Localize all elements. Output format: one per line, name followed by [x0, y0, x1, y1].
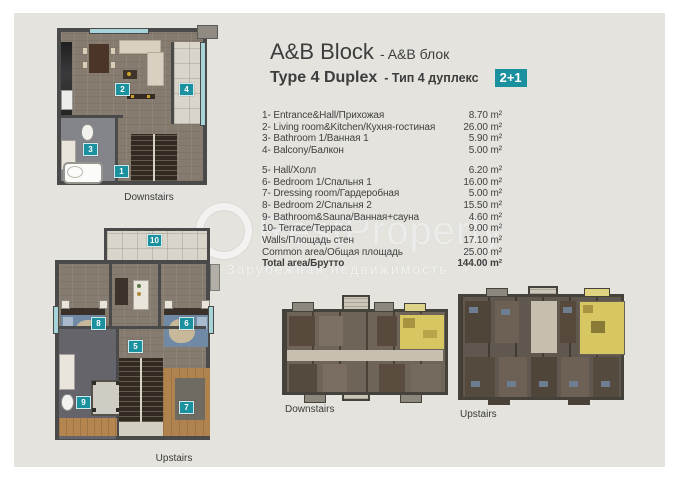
room-number-badge: 8	[91, 317, 106, 330]
unit-plan-upstairs: 10	[55, 228, 218, 440]
balcony	[304, 394, 326, 403]
bed-marker	[601, 381, 610, 387]
nightstand	[61, 300, 70, 309]
exterior-block	[197, 25, 218, 39]
chair	[83, 48, 87, 54]
unit-room	[289, 364, 317, 392]
decor	[131, 95, 134, 98]
chair	[111, 48, 115, 54]
decor	[137, 292, 141, 296]
desk	[115, 278, 128, 305]
window	[89, 28, 149, 34]
unit-plan-upstairs-label: Upstairs	[94, 453, 254, 464]
window	[208, 306, 214, 334]
building-floor	[458, 294, 624, 400]
stairs-divider	[140, 358, 142, 422]
building-plan-upstairs	[458, 286, 624, 400]
bathroom-vanity	[59, 354, 75, 390]
room-number-badge: 5	[128, 340, 143, 353]
highlighted-unit-furniture	[403, 318, 415, 328]
room-label: 1- Entrance&Hall/Прихожая	[262, 110, 384, 122]
building-plan-downstairs	[282, 295, 448, 401]
room-row: 6- Bedroom 1/Спальня 1 16.00 m²	[262, 177, 502, 189]
room-label: 7- Dressing room/Гардеробная	[262, 188, 399, 200]
room-area-value: 5.00 m²	[469, 145, 502, 157]
bathtub-basin	[67, 166, 83, 178]
stairs-divider	[153, 134, 155, 181]
bed-marker	[569, 381, 578, 387]
unit-room	[323, 364, 347, 392]
room-area-value: 9.00 m²	[469, 223, 502, 235]
room-label: Total area/Брутто	[262, 258, 344, 270]
hammam-bench	[59, 418, 117, 436]
room-label: 8- Bedroom 2/Спальня 2	[262, 200, 372, 212]
plan-sheet: RestProperty Зарубежная недвижимость® A&…	[14, 13, 665, 467]
unit-room	[289, 316, 315, 346]
room-label: 9- Bathroom&Sauna/Ванная+сауна	[262, 212, 419, 224]
room-row: 10- Terrace/Терраса 9.00 m²	[262, 223, 502, 235]
balcony	[488, 399, 510, 405]
bed-marker	[563, 307, 572, 313]
building-plan-upstairs-label: Upstairs	[460, 409, 497, 420]
room-number-badge: 3	[83, 143, 98, 156]
dressing-table	[133, 280, 149, 310]
room-row: 4- Balcony/Балкон 5.00 m²	[262, 145, 502, 157]
room-area-value: 4.60 m²	[469, 212, 502, 224]
room-area-value: 16.00 m²	[463, 177, 502, 189]
room-row: 2- Living room&Kitchen/Кухня-гостиная 26…	[262, 122, 502, 134]
room-number-badge: 1	[114, 165, 129, 178]
sauna-corner	[92, 408, 96, 412]
room-row: 3- Bathroom 1/Ванная 1 5.90 m²	[262, 133, 502, 145]
block-title: A&B Block	[270, 39, 374, 64]
highlighted-unit-furniture	[423, 330, 437, 338]
room-label: 2- Living room&Kitchen/Кухня-гостиная	[262, 122, 435, 134]
type-subtitle: - Тип 4 дуплекс	[384, 71, 478, 85]
room-area-value: 26.00 m²	[463, 122, 502, 134]
unit-room	[379, 364, 405, 392]
balcony	[486, 288, 508, 297]
room-number-badge: 4	[179, 83, 194, 96]
room-label: Walls/Площадь стен	[262, 235, 354, 247]
room-area-value: 25.00 m²	[463, 247, 502, 259]
balcony	[568, 399, 590, 405]
bed-marker	[501, 309, 510, 315]
room-label: 3- Bathroom 1/Ванная 1	[262, 133, 369, 145]
bed-marker	[507, 381, 516, 387]
room-row: Total area/Брутто 144.00 m²	[262, 258, 502, 270]
exterior-block	[210, 264, 220, 291]
bed-marker	[539, 381, 548, 387]
bed-marker	[469, 307, 478, 313]
bed-marker	[471, 381, 480, 387]
room-number-badge: 2	[115, 83, 130, 96]
room-number-badge: 7	[179, 401, 194, 414]
room-area-value: 8.70 m²	[469, 110, 502, 122]
room-label: 4- Balcony/Балкон	[262, 145, 344, 157]
room-area-value: 17.10 m²	[463, 235, 502, 247]
sauna-corner	[92, 381, 96, 385]
unit-room	[465, 357, 495, 397]
corridor	[531, 301, 557, 353]
room-row: 7- Dressing room/Гардеробная 5.00 m²	[262, 188, 502, 200]
balcony	[400, 394, 422, 403]
wall	[158, 264, 161, 326]
sofa	[147, 52, 164, 86]
room-area-value: 6.20 m²	[469, 165, 502, 177]
room-number-badge: 6	[179, 317, 194, 330]
unit-room	[377, 316, 397, 346]
corridor	[287, 350, 443, 361]
balcony	[292, 302, 314, 312]
decor	[147, 95, 150, 98]
room-row: Common area/Общая площадь 25.00 m²	[262, 247, 502, 259]
room-label: 6- Bedroom 1/Спальня 1	[262, 177, 372, 189]
chair	[83, 62, 87, 68]
room-label: 10- Terrace/Терраса	[262, 223, 352, 235]
room-area-value: 5.90 m²	[469, 133, 502, 145]
screenshot: RestProperty Зарубежная недвижимость® A&…	[0, 0, 679, 480]
unit-room	[593, 357, 619, 397]
toilet	[81, 124, 94, 141]
stair-landing	[119, 422, 163, 436]
wall	[61, 115, 123, 118]
highlighted-balcony	[584, 288, 610, 297]
bed	[61, 308, 105, 315]
nightstand	[99, 300, 108, 309]
unit-room	[499, 357, 527, 397]
room-label: Common area/Общая площадь	[262, 247, 403, 259]
room-row: 9- Bathroom&Sauna/Ванная+сауна 4.60 m²	[262, 212, 502, 224]
unit-plan-downstairs-label: Downstairs	[64, 192, 234, 203]
highlighted-balcony	[404, 303, 426, 312]
unit-room	[411, 364, 441, 392]
type-title: Type 4 Duplex	[270, 69, 377, 87]
room-label: 5- Hall/Холл	[262, 165, 316, 177]
room-area-list: 1- Entrance&Hall/Прихожая 8.70 m² 2- Liv…	[262, 110, 502, 270]
wall	[109, 264, 112, 326]
room-number-badge: 10	[147, 234, 162, 247]
chair	[111, 62, 115, 68]
balcony	[374, 302, 394, 312]
title-block: A&B Block- A&B блок Type 4 Duplex - Тип …	[270, 39, 527, 87]
block-subtitle: - A&B блок	[380, 46, 449, 62]
unit-room	[495, 301, 519, 343]
room-row: 8- Bedroom 2/Спальня 2 15.50 m²	[262, 200, 502, 212]
unit-room	[319, 316, 343, 346]
room-row: 1- Entrance&Hall/Прихожая 8.70 m²	[262, 110, 502, 122]
bed	[164, 308, 208, 315]
highlighted-unit-furniture	[583, 305, 593, 313]
building-floor	[282, 309, 448, 395]
toilet	[61, 394, 74, 411]
building-plan-downstairs-label: Downstairs	[285, 404, 334, 415]
nightstand	[164, 300, 173, 309]
unit-plan-downstairs: 2 4 3 1	[57, 28, 207, 185]
room-area-value: 5.00 m²	[469, 188, 502, 200]
window	[53, 306, 59, 334]
room-area-value: 15.50 m²	[463, 200, 502, 212]
layout-badge: 2+1	[495, 69, 527, 87]
decor	[127, 72, 131, 76]
fridge	[61, 90, 73, 110]
unit-room	[561, 357, 589, 397]
balcony-window	[200, 42, 206, 126]
dining-table	[89, 44, 109, 73]
room-area-value: 144.00 m²	[457, 258, 502, 270]
room-row: 5- Hall/Холл 6.20 m²	[262, 165, 502, 177]
decor	[137, 284, 141, 288]
highlighted-unit-furniture	[591, 321, 605, 333]
room-number-badge: 9	[76, 396, 91, 409]
unit-room	[531, 357, 557, 397]
room-row: Walls/Площадь стен 17.10 m²	[262, 235, 502, 247]
